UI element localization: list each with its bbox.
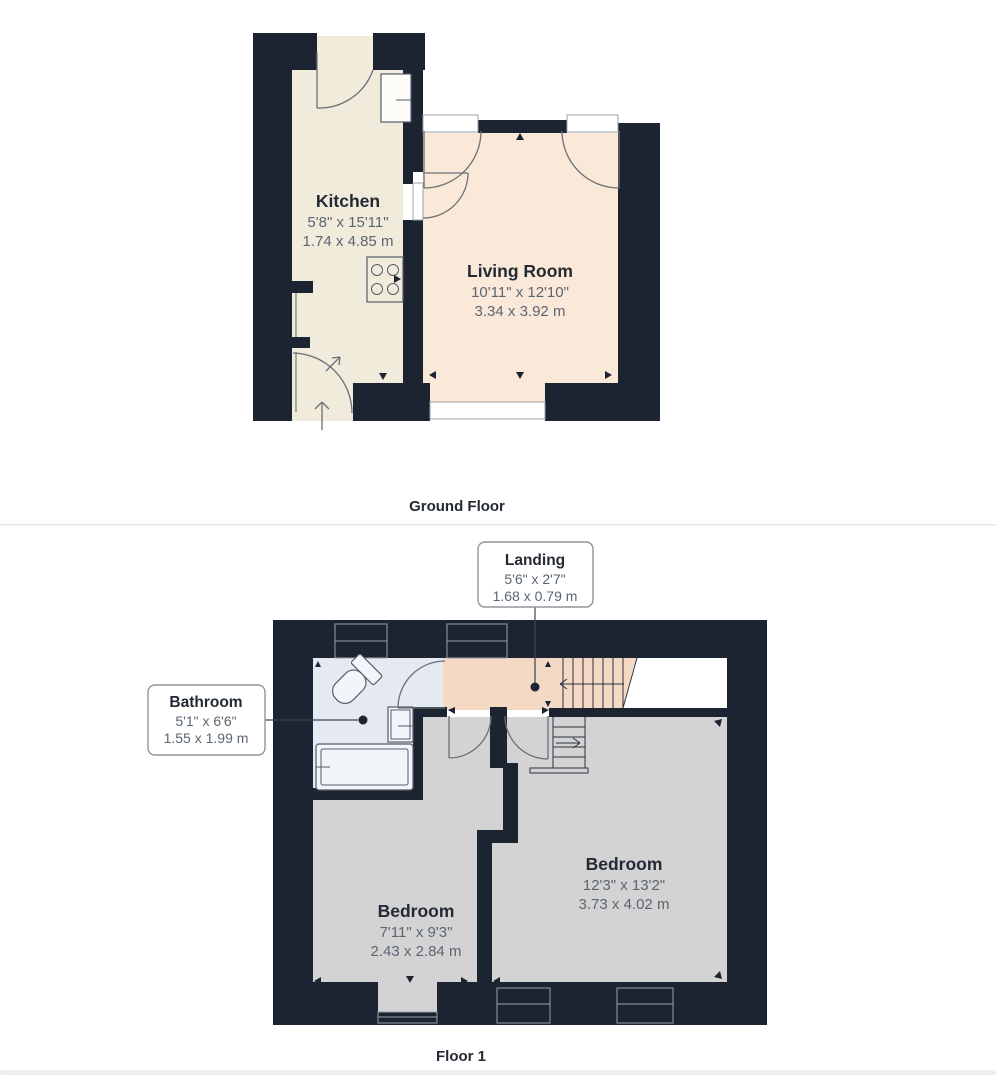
floor1-caption: Floor 1 — [436, 1048, 486, 1065]
bedroom-large-area — [492, 717, 727, 982]
ground-floor-plan: Kitchen 5'8" x 15'11" 1.74 x 4.85 m Livi… — [253, 33, 660, 515]
bathroom-leader-dot — [359, 716, 368, 725]
patio-door-recess-left — [423, 115, 478, 132]
kitchen-label: Kitchen — [316, 191, 380, 211]
bathtub-icon — [316, 744, 413, 790]
kitchen-entry-recess-top — [317, 36, 373, 72]
bay-window-floor1 — [378, 982, 437, 1012]
bedroom-small-label: Bedroom — [378, 901, 455, 921]
floorplan-image: Kitchen 5'8" x 15'11" 1.74 x 4.85 m Livi… — [0, 0, 996, 1080]
bathroom-label: Bathroom — [169, 694, 242, 711]
bedroom-small-size-metric: 2.43 x 2.84 m — [371, 943, 462, 960]
bay-window — [430, 402, 545, 419]
kitchen-size-imperial: 5'8" x 15'11" — [307, 214, 388, 231]
sink-icon — [388, 707, 413, 742]
kitchen-size-metric: 1.74 x 4.85 m — [303, 233, 394, 250]
ground-floor-caption: Ground Floor — [409, 498, 505, 515]
living-room-area — [423, 133, 618, 383]
bathroom-callout: Bathroom 5'1" x 6'6" 1.55 x 1.99 m — [148, 685, 265, 755]
bathroom-size-metric: 1.55 x 1.99 m — [164, 730, 249, 746]
bedroom-large-size-metric: 3.73 x 4.02 m — [579, 896, 670, 913]
bay-window-floor — [430, 383, 545, 402]
floor1-plan: Landing 5'6" x 2'7" 1.68 x 0.79 m Bathro… — [148, 542, 767, 1065]
landing-size-imperial: 5'6" x 2'7" — [504, 571, 565, 587]
bathroom-doorway-area — [413, 658, 447, 708]
stairs-area — [553, 658, 637, 708]
stairwell-void — [623, 658, 727, 708]
landing-label: Landing — [505, 552, 565, 569]
bedroom-large-label: Bedroom — [586, 854, 663, 874]
patio-door-recess-right — [567, 115, 618, 132]
bottom-divider — [0, 1070, 996, 1075]
living-room-label: Living Room — [467, 261, 573, 281]
living-room-size-metric: 3.34 x 3.92 m — [475, 303, 566, 320]
bathroom-size-imperial: 5'1" x 6'6" — [175, 713, 236, 729]
boiler-cabinet — [381, 74, 411, 122]
landing-size-metric: 1.68 x 0.79 m — [493, 588, 578, 604]
landing-leader-dot — [531, 683, 540, 692]
kitchen-living-doorway — [413, 183, 423, 220]
bedroom-small-size-imperial: 7'11" x 9'3" — [380, 924, 453, 941]
bedroom-large-size-imperial: 12'3" x 13'2" — [583, 877, 665, 894]
living-room-size-imperial: 10'11" x 12'10" — [471, 284, 569, 301]
section-divider — [0, 524, 996, 526]
landing-callout: Landing 5'6" x 2'7" 1.68 x 0.79 m — [478, 542, 593, 607]
